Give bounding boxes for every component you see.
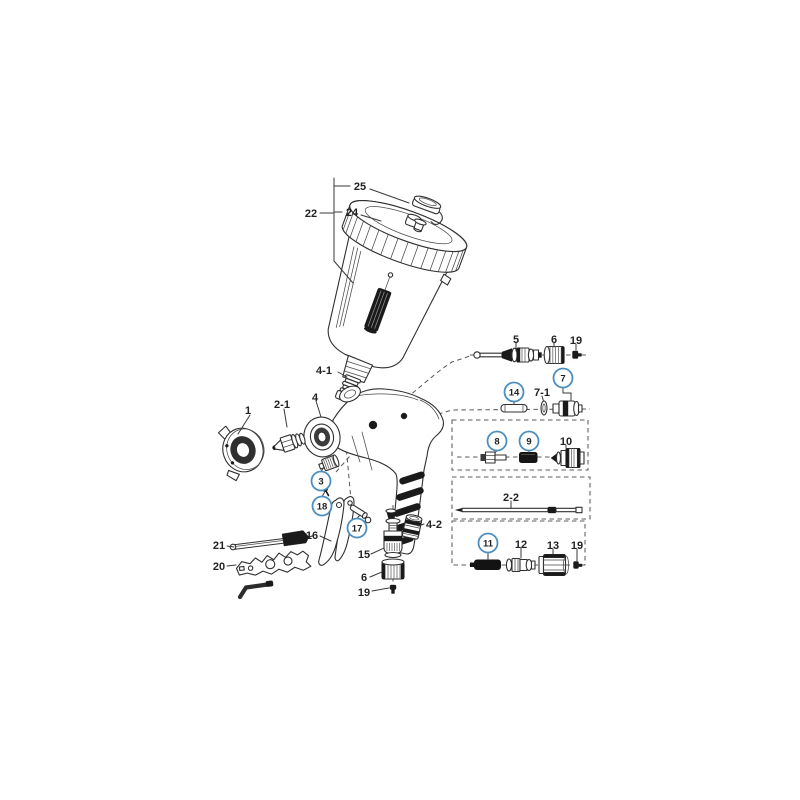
callout-label-2-2: 2-2	[503, 492, 519, 504]
callout-label-12: 12	[515, 539, 527, 551]
part-6-top-knob	[544, 347, 564, 364]
callout-label-7: 7	[560, 373, 565, 384]
callout-label-1: 1	[245, 405, 251, 417]
callout-label-19-bottom-right: 19	[571, 540, 583, 552]
callout-label-6-top: 6	[551, 334, 557, 346]
callout-label-4: 4	[312, 392, 319, 404]
callout-label-24: 24	[346, 207, 359, 219]
callout-label-19-bottom: 19	[358, 587, 370, 599]
callout-label-9: 9	[526, 436, 531, 447]
callout-label-3: 3	[318, 476, 323, 487]
callout-label-6-bottom: 6	[361, 572, 367, 584]
callout-label-25: 25	[354, 181, 366, 193]
part-2-2-fluid-needle	[456, 507, 583, 513]
callout-label-20: 20	[213, 561, 225, 573]
callout-label-8: 8	[494, 436, 499, 447]
callout-label-21: 21	[213, 540, 225, 552]
callout-label-18: 18	[317, 501, 328, 512]
callout-label-2-1: 2-1	[274, 399, 290, 411]
callout-label-15: 15	[358, 549, 370, 561]
part-14-pin	[501, 405, 527, 413]
callout-label-10: 10	[560, 436, 572, 448]
callout-label-4-2: 4-2	[426, 519, 442, 531]
diagram-canvas: 25 24 22 4-1 4 1 2-1 16 21 20 15 6 19 4-…	[0, 0, 800, 800]
callout-label-5: 5	[513, 334, 519, 346]
part-6-bottom-knob	[382, 559, 404, 579]
callout-label-19-top: 19	[570, 335, 582, 347]
part-7-1-valve-seal	[541, 401, 547, 415]
part-13-knob-large	[539, 555, 569, 576]
part-12-piston	[506, 559, 535, 572]
callout-label-16: 16	[306, 530, 318, 542]
callout-label-14: 14	[509, 387, 520, 398]
callout-label-17: 17	[352, 523, 363, 534]
part-11-spring	[470, 560, 501, 571]
exploded-parts-diagram: 25 24 22 4-1 4 1 2-1 16 21 20 15 6 19 4-…	[0, 0, 800, 800]
callout-label-11: 11	[483, 538, 494, 549]
part-9-spring	[519, 452, 538, 463]
callout-label-22: 22	[305, 208, 317, 220]
callout-label-13: 13	[547, 540, 559, 552]
callout-label-4-1: 4-1	[316, 365, 332, 377]
callout-label-7-1: 7-1	[534, 387, 550, 399]
